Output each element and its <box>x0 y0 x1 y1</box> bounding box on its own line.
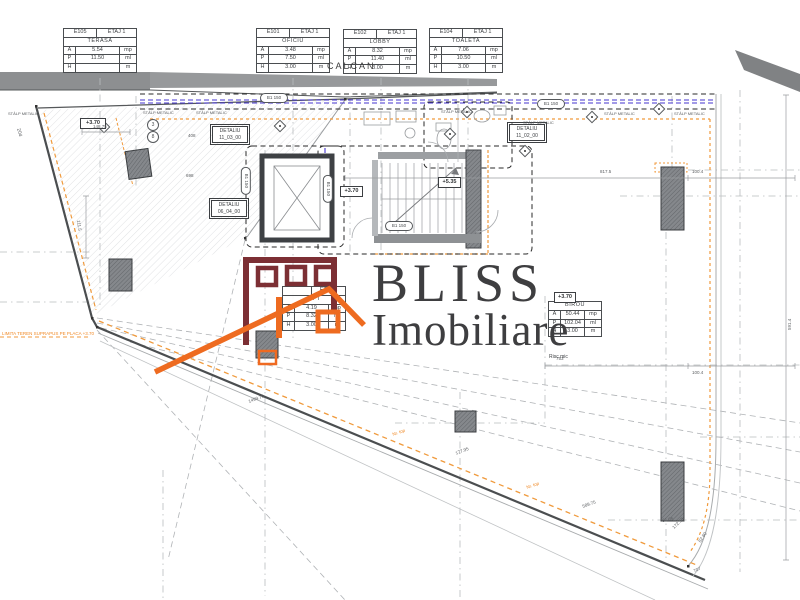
room-metric-row: A8.32mp <box>344 47 416 56</box>
room-name-row: TOALETA <box>430 37 502 46</box>
room-id: E101 <box>257 29 289 37</box>
detail-callout-code: 11_03_00 <box>213 135 247 142</box>
beam-callout: B1 150 <box>385 221 413 231</box>
metric-value: 8.32 <box>294 313 328 321</box>
room-name: LOBBY <box>344 39 416 47</box>
metric-unit: m <box>584 328 601 336</box>
level-marker: +3.70 <box>554 292 576 303</box>
calcan-band-left <box>0 72 150 90</box>
room-metric-row: P10.50ml <box>430 54 502 63</box>
room-name: OFICIU <box>257 38 329 46</box>
beam-callout: B1 150 <box>260 93 288 103</box>
metric-unit: m <box>399 65 416 73</box>
brand-subname: Imobiliare <box>372 308 569 353</box>
plan-label: 698 <box>186 174 194 179</box>
metric-unit: mp <box>312 47 329 55</box>
floor-plan-canvas: BLISS Imobiliare E105ETAJ 1TERASAA5.54mp… <box>0 0 800 600</box>
detail-callout: DETALIU11_02_00 <box>509 124 545 141</box>
room-metric-row: P8.32ml <box>283 312 345 321</box>
logo-window-1 <box>258 268 276 285</box>
metric-key: A <box>430 47 441 55</box>
beam-callout: B1 150 <box>241 167 251 195</box>
plan-label: STÂLP METALIC <box>523 121 554 125</box>
insulation-line-blue <box>140 100 716 244</box>
plan-label: 100.4 <box>692 371 703 376</box>
calcan-band-center <box>150 72 497 88</box>
metric-value <box>75 64 119 72</box>
metric-unit: mp <box>399 48 416 56</box>
grid-bubble: 8 <box>147 131 159 143</box>
plan-label: 111.5 <box>76 220 82 231</box>
grid-bubble: 3 <box>147 119 159 131</box>
plan-label: STÂLP METALIC <box>143 111 174 115</box>
plan-label: STÂLP METALIC <box>674 112 705 116</box>
metric-unit: m <box>328 322 345 330</box>
brand-name: BLISS <box>372 256 544 310</box>
metric-unit: ml <box>485 55 502 63</box>
room-id <box>283 287 311 295</box>
detail-callout-code: 06_04_00 <box>212 209 246 216</box>
metric-unit: mp <box>328 305 345 313</box>
metric-key: H <box>430 64 441 72</box>
room-metric-row: A4.19mp <box>283 304 345 313</box>
diamond-markers <box>98 103 664 156</box>
plan-label: 591.4 <box>788 319 793 330</box>
plan-label: STÂLP METALIC <box>604 112 635 116</box>
room-table-header: E105ETAJ 1 <box>64 29 136 37</box>
metric-value: 3.00 <box>294 322 328 330</box>
plan-label: 589.75 <box>582 500 596 509</box>
logo-window-3 <box>316 267 334 284</box>
room-table-header: ETAJ 1 <box>283 287 345 295</box>
fixtures <box>352 104 506 238</box>
metric-value: 3.00 <box>268 64 312 72</box>
room-floor: ETAJ 1 <box>289 29 329 37</box>
metric-key: A <box>64 47 75 55</box>
plan-label: Nr. top <box>526 482 540 491</box>
room-name: TERASA <box>64 38 136 46</box>
room-id: E105 <box>64 29 96 37</box>
detail-callout-code: 11_02_00 <box>510 133 544 140</box>
metric-key: A <box>257 47 268 55</box>
setback-lines-orange <box>0 113 710 566</box>
plan-label: 61.05 <box>662 517 674 523</box>
room-id: E104 <box>430 29 462 37</box>
room-name: LIFT <box>283 296 345 304</box>
metric-unit: mp <box>119 47 136 55</box>
plan-label: 172.53 <box>672 517 685 530</box>
room-name: TOALETA <box>430 38 502 46</box>
plan-label: 753 <box>556 357 564 362</box>
room-name-row: LOBBY <box>344 38 416 47</box>
plan-label: 1499.75 <box>248 394 265 404</box>
plan-label: 817.5 <box>600 170 611 175</box>
plan-label: STÂLP METALIC <box>441 110 472 114</box>
plan-label: 100.4 <box>692 170 703 175</box>
metric-value: 7.50 <box>268 55 312 63</box>
room-name-row: OFICIU <box>257 37 329 46</box>
room-metric-row: H3.00m <box>257 63 329 72</box>
plan-label: CALCAN <box>327 62 376 71</box>
metric-unit: ml <box>328 313 345 321</box>
room-name-row: LIFT <box>283 295 345 304</box>
logo-orange-square-small <box>259 351 276 364</box>
metric-key: P <box>257 55 268 63</box>
metric-value: 4.19 <box>294 305 328 313</box>
room-metric-row: P7.50ml <box>257 54 329 63</box>
room-metric-row: A7.06mp <box>430 46 502 55</box>
metric-key: A <box>283 305 294 313</box>
plan-label: 707 <box>693 567 702 574</box>
room-metric-row: H3.00m <box>283 321 345 330</box>
metric-key: H <box>283 322 294 330</box>
room-table: E101ETAJ 1OFICIUA3.48mpP7.50mlH3.00m <box>256 28 330 73</box>
room-id: E102 <box>344 30 376 38</box>
plan-label: 177.95 <box>455 447 469 456</box>
detail-callout: DETALIU06_04_00 <box>211 200 247 217</box>
plan-label: 82.80 <box>698 532 708 544</box>
metric-value: 3.48 <box>268 47 312 55</box>
room-metric-row: A5.54mp <box>64 46 136 55</box>
metric-unit: mp <box>485 47 502 55</box>
room-table-header: E102ETAJ 1 <box>344 30 416 38</box>
plan-label: STÂLP METALIC <box>196 111 227 115</box>
level-marker: +3.70 <box>340 186 363 197</box>
metric-unit: ml <box>584 320 601 328</box>
metric-key: P <box>283 313 294 321</box>
stair-core <box>262 150 481 248</box>
metric-value: 11.50 <box>75 55 119 63</box>
metric-unit: m <box>119 64 136 72</box>
plan-label: 408 <box>188 134 196 139</box>
detail-callout: DETALIU11_03_00 <box>212 126 248 143</box>
room-name-row: TERASA <box>64 37 136 46</box>
metric-value: 7.06 <box>441 47 485 55</box>
metric-unit: ml <box>119 55 136 63</box>
plan-label: 204 <box>15 128 22 137</box>
metric-key: H <box>257 64 268 72</box>
room-table: ETAJ 1LIFTA4.19mpP8.32mlH3.00m <box>282 286 346 331</box>
plan-label: Nr. top <box>392 429 406 438</box>
metric-key: H <box>64 64 75 72</box>
room-metric-row: H3.00m <box>430 63 502 72</box>
room-floor: ETAJ 1 <box>96 29 136 37</box>
room-floor: ETAJ 1 <box>462 29 502 37</box>
plan-label: 148.75 <box>93 125 107 130</box>
metric-key: P <box>430 55 441 63</box>
room-metric-row: A3.48mp <box>257 46 329 55</box>
plan-label: STÂLP METALIC <box>8 112 39 116</box>
metric-unit: ml <box>399 56 416 64</box>
dashed-contours <box>140 94 718 254</box>
metric-value: 5.54 <box>75 47 119 55</box>
room-floor: ETAJ 1 <box>311 287 345 295</box>
metric-key: P <box>64 55 75 63</box>
metric-value: 8.32 <box>355 48 399 56</box>
logo-window-2 <box>287 267 305 284</box>
beam-callout: B1 150 <box>537 99 565 109</box>
room-table-header: E104ETAJ 1 <box>430 29 502 37</box>
plan-label: LIMITA TEREN SUPRAPUS PE PLACA +3.70 <box>2 332 94 337</box>
room-floor: ETAJ 1 <box>376 30 416 38</box>
room-metric-row: Hm <box>64 63 136 72</box>
room-table: E104ETAJ 1TOALETAA7.06mpP10.50mlH3.00m <box>429 28 503 73</box>
beam-callout: B1 150 <box>323 175 333 203</box>
calcan-band-right <box>735 50 800 92</box>
metric-key: A <box>344 48 355 56</box>
room-metric-row: P11.50ml <box>64 54 136 63</box>
metric-value: 3.00 <box>441 64 485 72</box>
metric-value: 10.50 <box>441 55 485 63</box>
site-boundary <box>36 106 705 580</box>
room-table: E105ETAJ 1TERASAA5.54mpP11.50mlHm <box>63 28 137 73</box>
metric-unit: m <box>485 64 502 72</box>
level-marker: +5.35 <box>438 177 461 188</box>
room-table-header: E101ETAJ 1 <box>257 29 329 37</box>
metric-unit: mp <box>584 311 601 319</box>
